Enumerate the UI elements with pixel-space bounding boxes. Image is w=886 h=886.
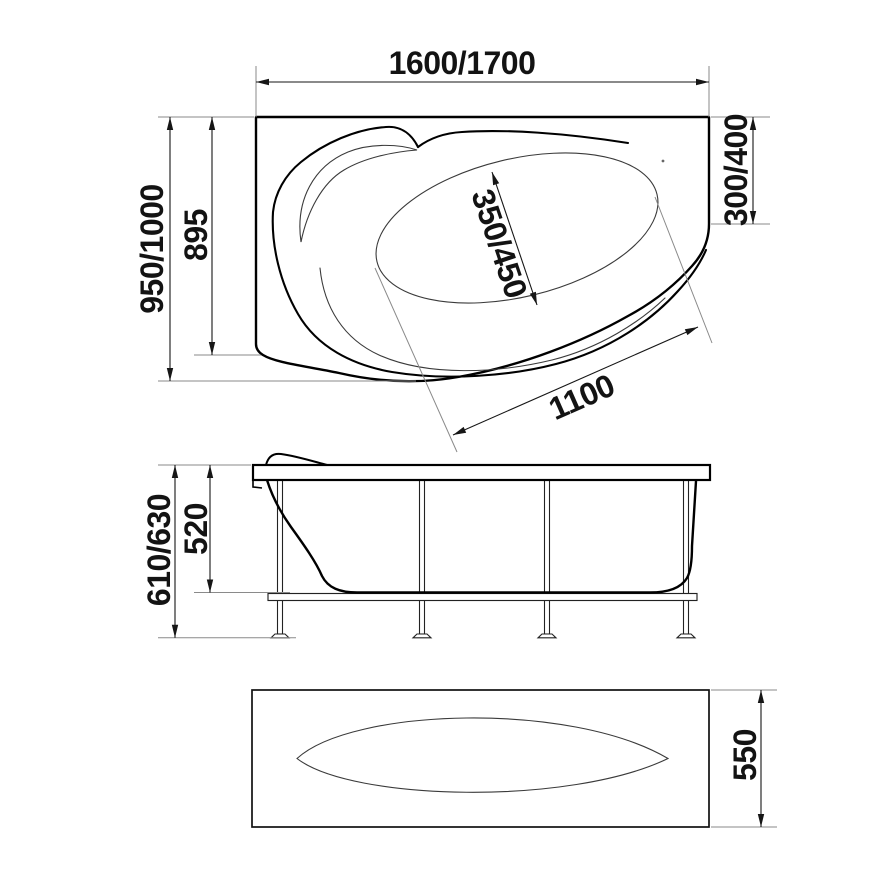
dim-label-wall-side: 895: [178, 209, 214, 261]
seat-contour: [320, 268, 665, 371]
side-elevation-view: 610/630 520: [141, 454, 710, 638]
reference-dot: [662, 160, 665, 163]
headrest-profile: [266, 454, 327, 465]
headrest-crescent: [300, 145, 417, 242]
frame-bottom-bar: [268, 594, 697, 601]
front-panel-view: 550: [252, 690, 777, 827]
drawing-sheet: 1600/1700 950/1000 895 300/400 350/450 1…: [0, 0, 886, 886]
dim-label-length: 1600/1700: [389, 45, 536, 81]
front-panel-outline: [252, 690, 709, 827]
top-view: 1600/1700 950/1000 895 300/400 350/450 1…: [134, 45, 770, 452]
bathtub-technical-drawing: 1600/1700 950/1000 895 300/400 350/450 1…: [0, 0, 886, 886]
dim-label-shell-height: 520: [178, 503, 214, 555]
bathing-well-ellipse: [361, 127, 673, 328]
frame-legs: [278, 480, 689, 634]
extension-line: [158, 66, 770, 452]
tub-top-rim-accent: [418, 131, 628, 147]
dim-label-overall-width: 950/1000: [134, 184, 170, 313]
dim-label-overall-height: 610/630: [141, 494, 177, 606]
rim-lip: [253, 480, 262, 488]
dim-label-short-side: 300/400: [718, 114, 754, 226]
frame-feet: [271, 634, 695, 638]
tub-rim-side: [253, 465, 710, 480]
dim-label-well-length: 1100: [543, 367, 619, 427]
dim-label-panel-height: 550: [727, 729, 763, 781]
dim-label-well-width: 350/450: [464, 185, 534, 303]
tub-bowl-profile: [267, 480, 696, 593]
